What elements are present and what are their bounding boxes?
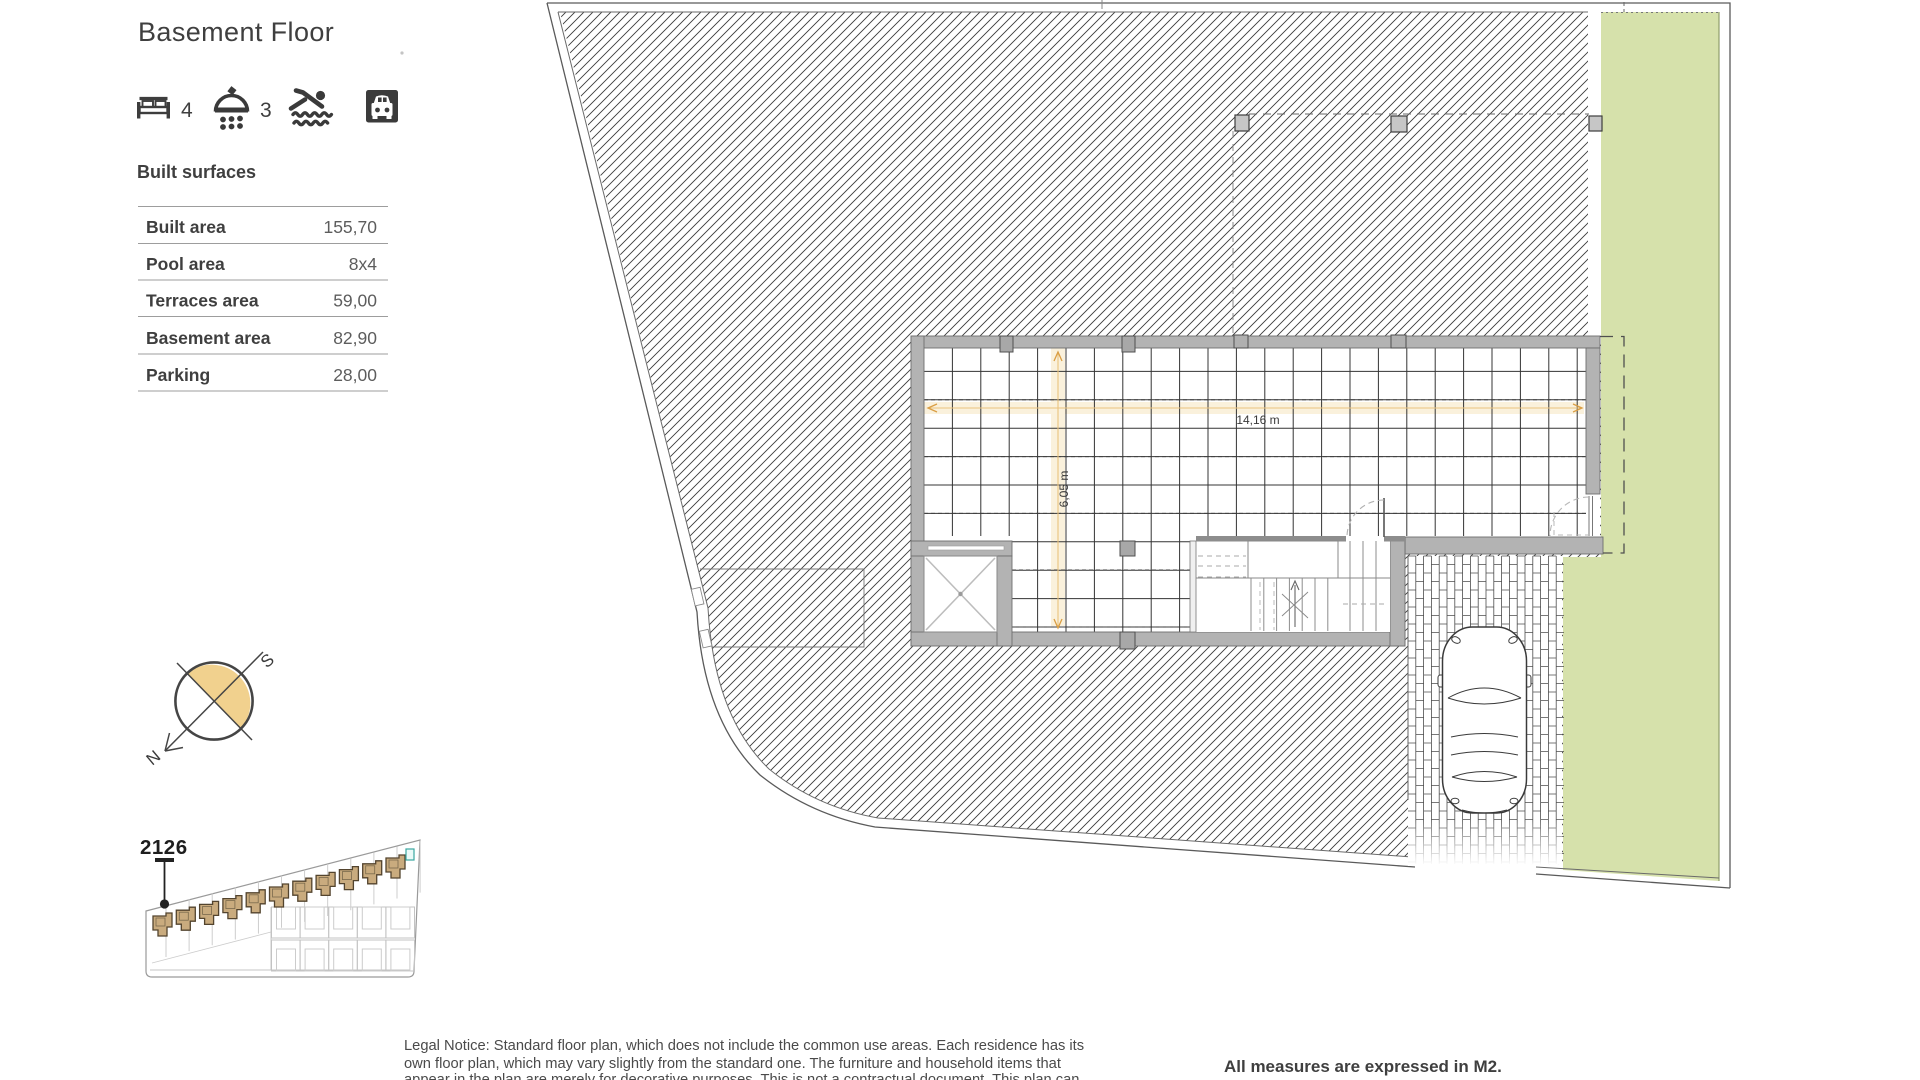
svg-text:appear in the plan are merely: appear in the plan are merely for decora… xyxy=(404,1072,1079,1080)
svg-text:All measures are expressed in: All measures are expressed in M2. xyxy=(1224,1057,1502,1076)
svg-text:Basement area: Basement area xyxy=(146,328,271,348)
svg-text:S: S xyxy=(257,650,278,672)
svg-text:4: 4 xyxy=(181,99,193,122)
svg-text:6,05 m: 6,05 m xyxy=(1057,471,1071,508)
svg-text:14,16 m: 14,16 m xyxy=(1236,413,1279,427)
svg-text:Built surfaces: Built surfaces xyxy=(137,162,256,182)
svg-text:Terraces area: Terraces area xyxy=(146,291,259,311)
svg-text:82,90: 82,90 xyxy=(333,328,377,348)
svg-text:own floor plan, which may vary: own floor plan, which may vary slightly … xyxy=(404,1056,1061,1072)
svg-text:3: 3 xyxy=(260,99,272,122)
svg-text:Parking: Parking xyxy=(146,365,210,385)
svg-text:155,70: 155,70 xyxy=(323,217,377,237)
svg-text:Legal Notice: Standard floor p: Legal Notice: Standard floor plan, which… xyxy=(404,1038,1084,1054)
svg-text:N: N xyxy=(143,747,165,769)
svg-text:28,00: 28,00 xyxy=(333,365,377,385)
svg-text:Built area: Built area xyxy=(146,217,226,237)
svg-text:59,00: 59,00 xyxy=(333,291,377,311)
svg-text:2126: 2126 xyxy=(140,836,188,859)
svg-text:8x4: 8x4 xyxy=(349,254,377,274)
svg-text:Pool area: Pool area xyxy=(146,254,225,274)
svg-text:Basement Floor: Basement Floor xyxy=(138,17,334,47)
